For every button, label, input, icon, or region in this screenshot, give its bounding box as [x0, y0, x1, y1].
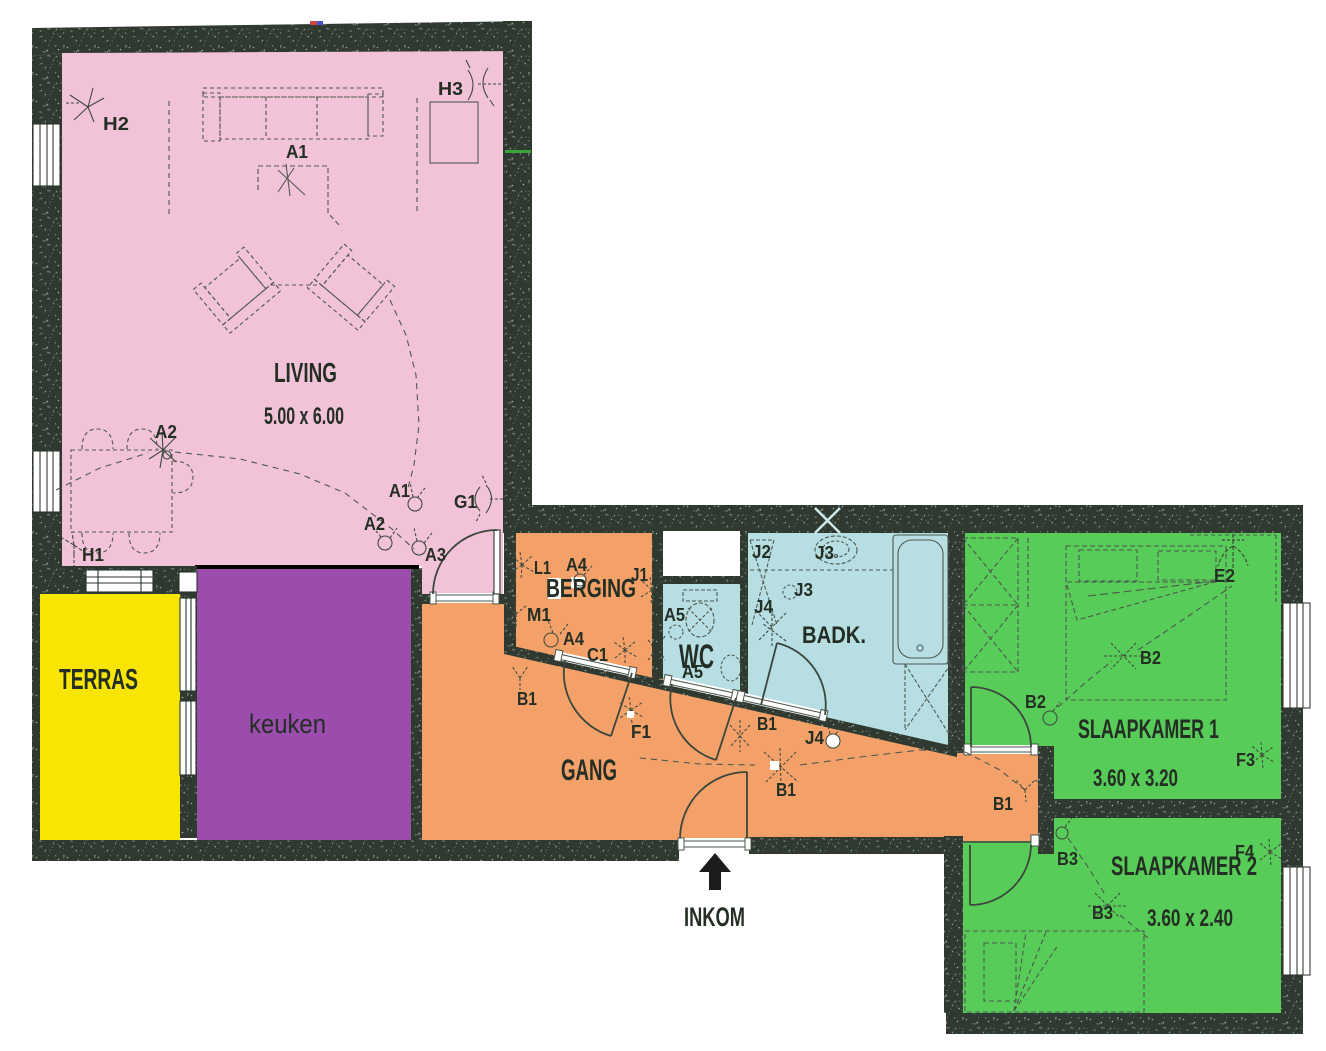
svg-text:B1: B1 — [517, 689, 537, 709]
svg-text:H1: H1 — [82, 545, 104, 565]
svg-text:3.60 x 2.40: 3.60 x 2.40 — [1147, 905, 1233, 932]
svg-text:J2: J2 — [752, 542, 771, 562]
svg-text:B2: B2 — [1140, 648, 1161, 668]
svg-text:E2: E2 — [1214, 566, 1235, 586]
svg-text:H3: H3 — [438, 79, 463, 99]
svg-text:keuken: keuken — [249, 709, 326, 739]
svg-text:F1: F1 — [631, 722, 651, 742]
svg-text:A1: A1 — [389, 481, 410, 501]
svg-text:A4: A4 — [563, 629, 584, 649]
svg-text:A2: A2 — [364, 514, 385, 534]
svg-text:TERRAS: TERRAS — [59, 664, 138, 696]
svg-text:A5: A5 — [664, 605, 685, 625]
svg-text:BADK.: BADK. — [802, 622, 866, 649]
svg-text:GANG: GANG — [561, 754, 617, 787]
svg-text:C1: C1 — [587, 645, 608, 665]
svg-text:A4: A4 — [566, 555, 587, 575]
svg-text:B2: B2 — [1025, 692, 1046, 712]
svg-text:A5: A5 — [682, 662, 703, 682]
svg-text:A2: A2 — [155, 422, 177, 442]
svg-text:J4: J4 — [805, 728, 824, 748]
svg-text:J3: J3 — [794, 580, 813, 600]
svg-text:A3: A3 — [425, 545, 446, 565]
svg-text:B1: B1 — [757, 714, 777, 734]
svg-text:LIVING: LIVING — [274, 357, 337, 388]
svg-text:M1: M1 — [527, 605, 551, 625]
svg-text:J4: J4 — [754, 597, 773, 617]
svg-text:SLAAPKAMER 1: SLAAPKAMER 1 — [1078, 714, 1219, 744]
svg-text:G1: G1 — [454, 492, 477, 512]
svg-text:H2: H2 — [103, 114, 129, 134]
svg-text:B1: B1 — [776, 780, 796, 800]
svg-text:J3: J3 — [815, 543, 834, 563]
svg-text:B3: B3 — [1057, 849, 1078, 869]
svg-text:F3: F3 — [1236, 750, 1255, 770]
svg-text:INKOM: INKOM — [684, 902, 745, 932]
svg-text:3.60 x 3.20: 3.60 x 3.20 — [1093, 765, 1178, 792]
svg-text:J1: J1 — [631, 565, 648, 585]
svg-text:B3: B3 — [1092, 903, 1113, 923]
svg-text:A1: A1 — [286, 142, 308, 162]
svg-text:B1: B1 — [993, 794, 1013, 814]
svg-text:BERGING: BERGING — [546, 573, 636, 603]
svg-text:L1: L1 — [534, 558, 551, 578]
svg-text:F4: F4 — [1235, 842, 1254, 862]
svg-text:5.00 x 6.00: 5.00 x 6.00 — [264, 403, 344, 430]
